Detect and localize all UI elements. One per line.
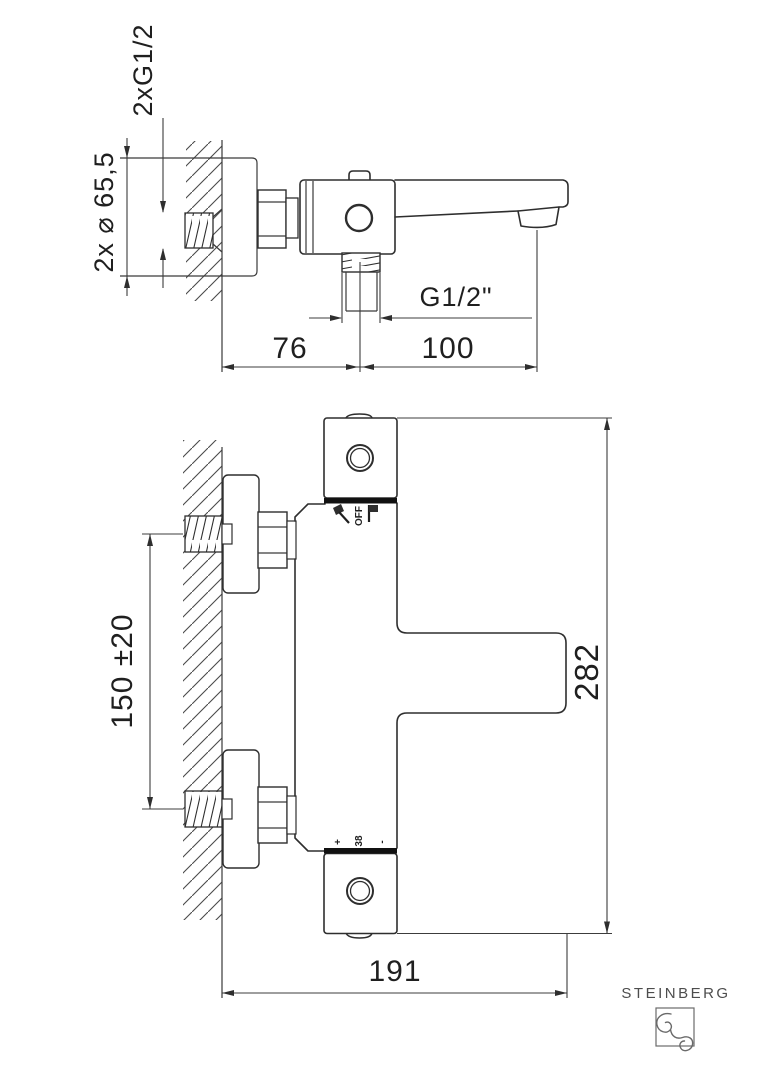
shower-outlet-pipe [342,253,380,311]
aerator-side [518,207,559,227]
spout-front [397,503,566,848]
union-nut-bottom [258,787,287,843]
wall-hatch-front [183,440,222,920]
dimension-overall-height: 282 [397,418,612,934]
front-view: OFF + 38 - 150 ±20 [106,414,612,998]
label-minus: - [377,840,388,843]
diverter-handle: OFF [324,414,397,526]
brand-block: STEINBERG [621,985,730,1051]
label-off: OFF [354,506,365,526]
dimension-inlet-spacing: 150 ±20 [106,534,183,809]
dimension-inlet-thread: 2xG1/2 [128,23,166,288]
hand-shower-icon [333,504,349,523]
label-overall-depth: 191 [368,955,421,988]
dimension-escutcheon-diameter: 2x ⌀ 65,5 [89,138,130,296]
technical-drawing-page: 2xG1/2 2x ⌀ 65,5 G1/2" [0,0,764,1080]
thermostat-handle: + 38 - [324,835,397,938]
brand-logo-frame [656,1008,694,1046]
knob-side [349,171,370,180]
union-nut-side [258,190,298,248]
brand-name: STEINBERG [621,985,730,1002]
faucet-dimension-drawing: 2xG1/2 2x ⌀ 65,5 G1/2" [0,0,764,1080]
mixer-body-side [300,171,395,254]
dimension-outlet-thread: G1/2" [309,273,532,323]
label-inlet-spacing: 150 ±20 [106,613,139,728]
side-view: 2xG1/2 2x ⌀ 65,5 G1/2" [89,23,568,372]
spout-side [395,180,568,227]
dimension-overall-depth: 191 [222,934,567,999]
label-overall-height: 282 [568,643,605,701]
label-plus: + [333,839,344,845]
brand-swirl-icon [657,1014,693,1051]
union-nut-top [258,512,287,568]
label-outlet-thread: G1/2" [419,282,492,312]
label-inlet-thread: 2xG1/2 [128,23,158,116]
bath-spout-icon [369,505,378,522]
label-temperature-38: 38 [354,835,365,847]
mixer-body-front [295,503,566,851]
label-wall-to-outlet: 76 [272,332,307,365]
label-outlet-to-spout: 100 [421,332,474,365]
label-escutcheon-diameter: 2x ⌀ 65,5 [89,151,119,272]
